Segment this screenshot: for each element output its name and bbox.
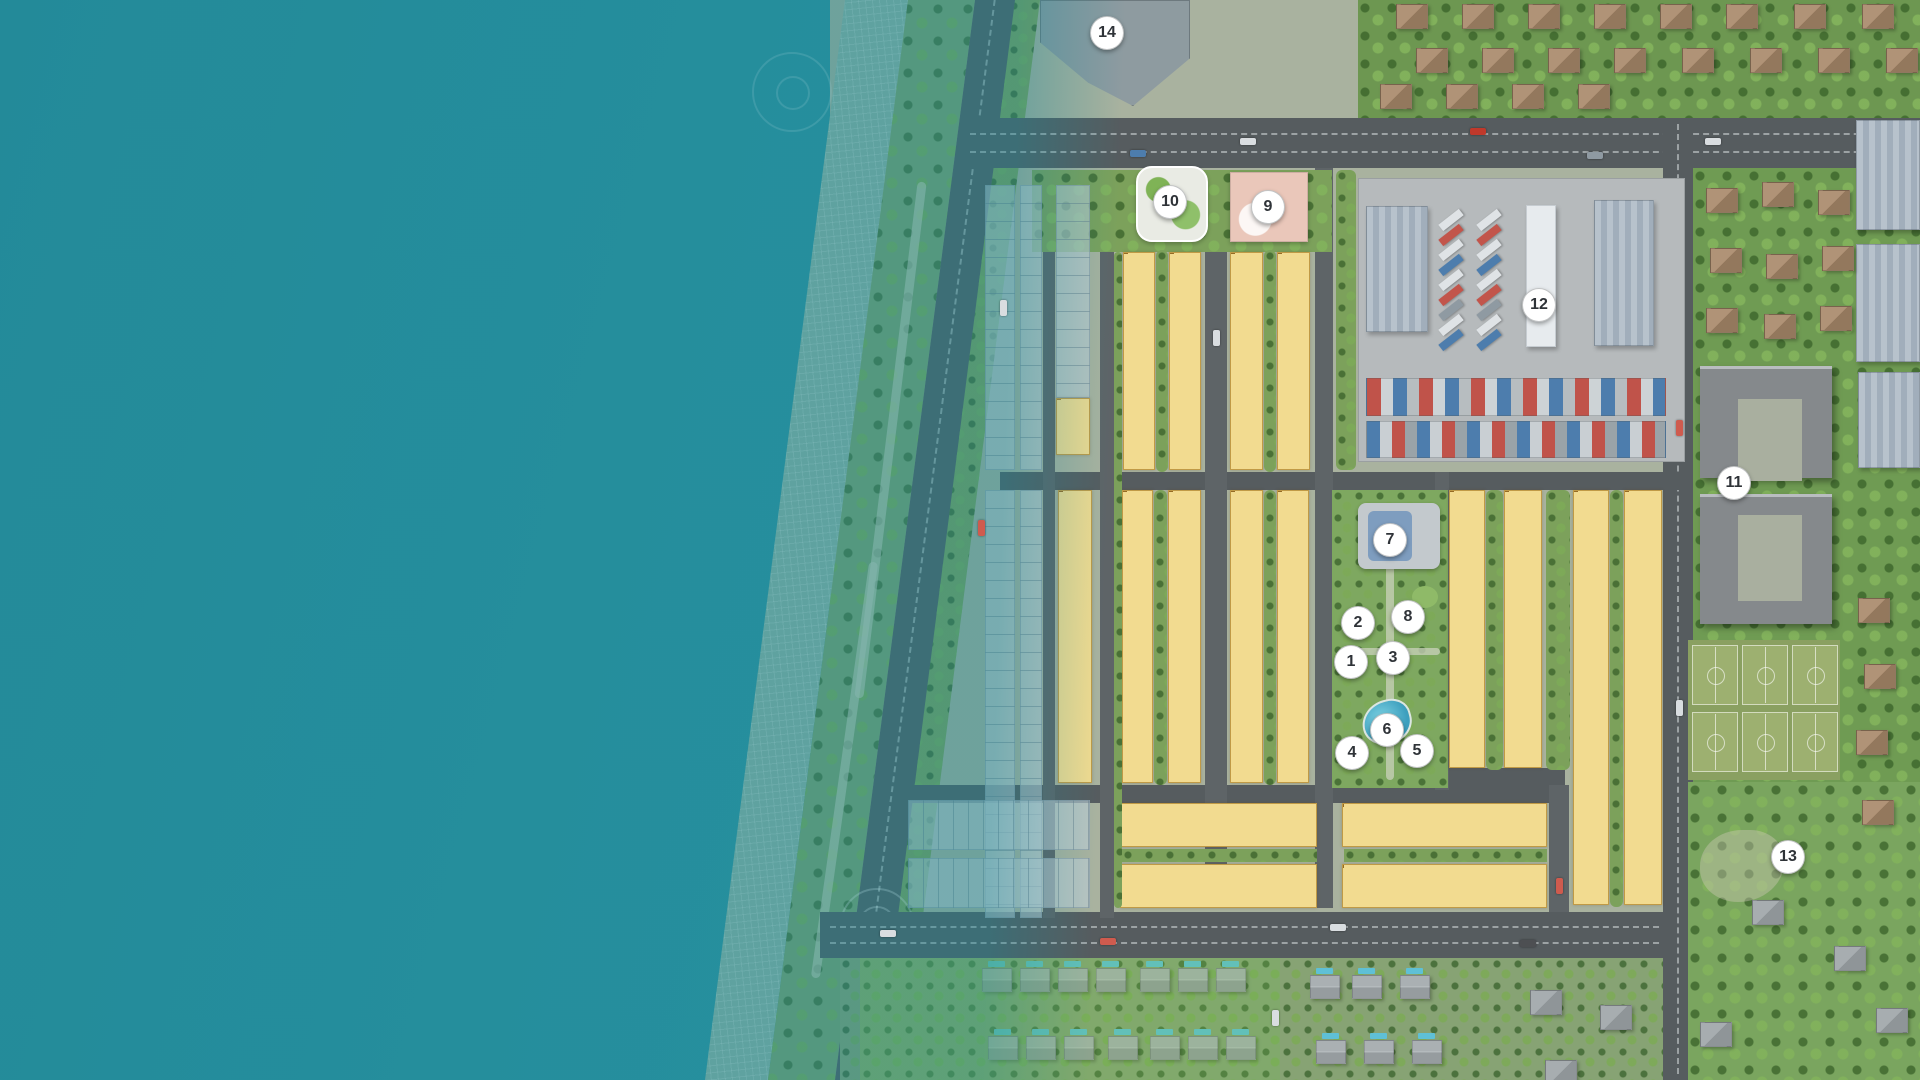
amenity-marker-4[interactable]: 4 — [1335, 736, 1369, 770]
master-plan-map: A1165.00A2169.00A3256.30 B1142.50B2142.5… — [0, 0, 1920, 1080]
car — [1556, 878, 1563, 894]
car — [1100, 938, 1116, 945]
amenity-marker-7[interactable]: 7 — [1373, 523, 1407, 557]
car — [1272, 1010, 1279, 1026]
amenity-marker-14[interactable]: 14 — [1090, 16, 1124, 50]
car — [880, 930, 896, 937]
amenity-marker-5[interactable]: 5 — [1400, 734, 1434, 768]
car — [1520, 940, 1536, 947]
car — [1705, 138, 1721, 145]
car — [1000, 300, 1007, 316]
amenity-marker-8[interactable]: 8 — [1391, 600, 1425, 634]
amenity-marker-9[interactable]: 9 — [1251, 190, 1285, 224]
car — [1676, 700, 1683, 716]
amenity-marker-3[interactable]: 3 — [1376, 641, 1410, 675]
amenity-marker-12[interactable]: 12 — [1522, 288, 1556, 322]
car — [1240, 138, 1256, 145]
amenity-marker-13[interactable]: 13 — [1771, 840, 1805, 874]
car — [1330, 924, 1346, 931]
markers-layer: 1234567891011121314 — [0, 0, 1920, 1080]
car — [978, 520, 985, 536]
car — [1130, 150, 1146, 157]
amenity-marker-6[interactable]: 6 — [1370, 713, 1404, 747]
car — [1470, 128, 1486, 135]
car — [1676, 420, 1683, 436]
amenity-marker-2[interactable]: 2 — [1341, 606, 1375, 640]
amenity-marker-10[interactable]: 10 — [1153, 185, 1187, 219]
car — [1587, 152, 1603, 159]
amenity-marker-1[interactable]: 1 — [1334, 645, 1368, 679]
car — [1213, 330, 1220, 346]
amenity-marker-11[interactable]: 11 — [1717, 466, 1751, 500]
